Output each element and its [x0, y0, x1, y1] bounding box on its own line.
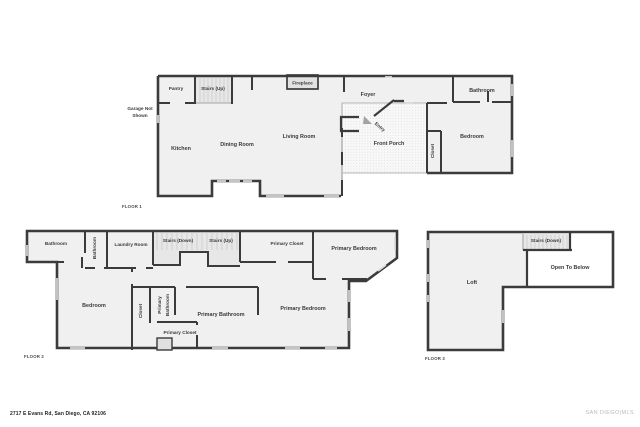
room-label-loft: Loft: [467, 280, 477, 286]
room-label-bedroom-f2: Bedroom: [82, 303, 106, 309]
property-address: 2717 E Evans Rd, San Diego, CA 92106: [10, 411, 106, 417]
room-label-bedroom-f1: Bedroom: [460, 134, 484, 140]
floor-1-plan: Pantry Stairs (Up) Fireplace Foyer Bathr…: [122, 75, 512, 209]
floor-plan-svg: Pantry Stairs (Up) Fireplace Foyer Bathr…: [0, 0, 640, 427]
room-label-primary-bath-small-line2: Bathroom: [165, 294, 170, 316]
room-label-closet-f1: Closet: [430, 143, 435, 158]
floor-plan-page: Pantry Stairs (Up) Fireplace Foyer Bathr…: [0, 0, 640, 427]
room-label-primary-closet-lower: Primary Closet: [163, 330, 197, 335]
room-label-fireplace: Fireplace: [292, 81, 313, 86]
front-porch-area: [342, 103, 427, 173]
room-label-closet-f2: Closet: [138, 303, 143, 318]
room-label-primary-bedroom-main: Primary Bedroom: [280, 306, 325, 312]
room-label-stairs-down-f3: Stairs (Down): [531, 238, 562, 243]
mls-brand-logo: SAN DIEGO|MLS: [586, 410, 635, 416]
room-label-primary-bedroom-top: Primary Bedroom: [331, 246, 376, 252]
room-label-bathroom-f2a: Bathroom: [45, 241, 67, 246]
room-label-pantry: Pantry: [169, 86, 184, 91]
floor-2-plan: Bathroom Bathroom Laundry Room Stairs (D…: [24, 231, 397, 359]
room-label-dining-room: Dining Room: [220, 142, 254, 148]
floor-2-label: FLOOR 2: [24, 354, 44, 359]
room-label-stairs-down-f2: Stairs (Down): [163, 238, 194, 243]
room-label-living-room: Living Room: [283, 134, 316, 140]
garage-note-line2: Shown: [132, 113, 147, 118]
garage-note-line1: Garage Not: [127, 106, 153, 111]
floor-3-plan: Stairs (Down) Open To Below Loft FLOOR 3: [425, 232, 613, 361]
room-label-bathroom-f2b: Bathroom: [92, 237, 97, 259]
room-label-foyer: Foyer: [361, 92, 377, 98]
floor-1-label: FLOOR 1: [122, 204, 142, 209]
room-label-laundry-room: Laundry Room: [114, 242, 147, 247]
room-label-open-to-below: Open To Below: [551, 265, 591, 271]
room-label-primary-closet-top: Primary Closet: [270, 241, 304, 246]
floor-3-label: FLOOR 3: [425, 356, 445, 361]
room-label-front-porch: Front Porch: [374, 141, 405, 147]
room-label-primary-bath-small-line1: Primary: [157, 296, 162, 314]
room-label-kitchen: Kitchen: [171, 146, 191, 152]
room-label-primary-bathroom: Primary Bathroom: [197, 312, 244, 318]
room-label-stairs-up-f2: Stairs (Up): [209, 238, 233, 243]
room-label-stairs-up-f1: Stairs (Up): [201, 86, 225, 91]
floor-3-area: [428, 232, 527, 350]
primary-closet-fixture: [157, 338, 172, 350]
room-label-bathroom-f1: Bathroom: [469, 88, 495, 94]
